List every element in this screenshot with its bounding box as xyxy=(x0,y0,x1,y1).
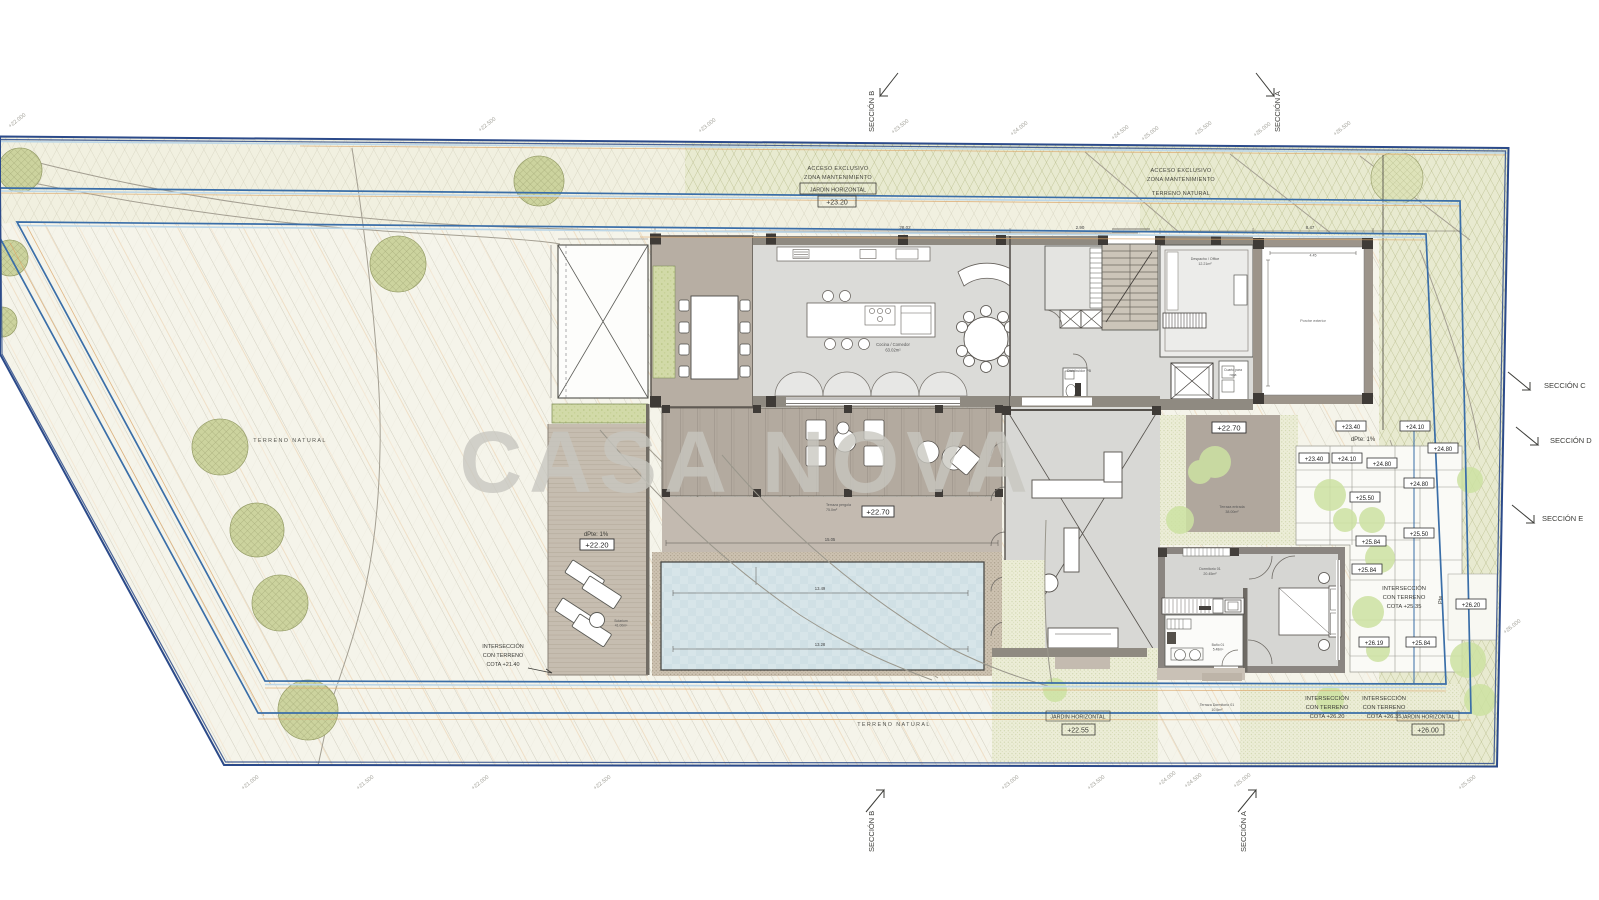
svg-text:INTERSECCIÓN: INTERSECCIÓN xyxy=(1362,695,1406,702)
svg-text:INTERSECCIÓN: INTERSECCIÓN xyxy=(482,643,524,650)
svg-text:TERRENO NATURAL: TERRENO NATURAL xyxy=(253,438,327,444)
svg-text:+22.70: +22.70 xyxy=(1217,424,1240,433)
svg-text:CASA NOVA: CASA NOVA xyxy=(459,414,1034,511)
svg-text:Pte: Pte xyxy=(1438,596,1444,604)
svg-text:TERRENO NATURAL: TERRENO NATURAL xyxy=(857,722,931,728)
svg-text:+26.19: +26.19 xyxy=(1365,641,1384,647)
svg-text:Terraza Dormitorio 01: Terraza Dormitorio 01 xyxy=(1200,703,1235,707)
svg-text:+25.84: +25.84 xyxy=(1412,641,1431,647)
svg-text:+25.50: +25.50 xyxy=(1410,532,1429,538)
svg-text:8.47: 8.47 xyxy=(1306,225,1315,230)
svg-text:Solarium: Solarium xyxy=(614,619,628,623)
svg-text:COTA +26.35: COTA +26.35 xyxy=(1367,714,1402,720)
svg-text:13.28: 13.28 xyxy=(815,642,826,647)
svg-text:Porche exterior: Porche exterior xyxy=(1300,319,1326,323)
svg-text:SECCIÓN B: SECCIÓN B xyxy=(867,811,876,852)
svg-text:SECCIÓN E: SECCIÓN E xyxy=(1542,514,1583,523)
svg-text:Distribuidor PB: Distribuidor PB xyxy=(1067,369,1092,373)
svg-text:dPte: 1%: dPte: 1% xyxy=(1351,437,1376,443)
svg-text:12.21m²: 12.21m² xyxy=(1198,262,1212,266)
svg-text:+25.50: +25.50 xyxy=(1356,496,1375,502)
svg-text:COTA +21.40: COTA +21.40 xyxy=(486,662,519,668)
svg-text:SECCIÓN B: SECCIÓN B xyxy=(867,91,876,132)
svg-text:SECCIÓN D: SECCIÓN D xyxy=(1550,436,1592,445)
svg-text:SECCIÓN C: SECCIÓN C xyxy=(1544,381,1586,390)
svg-text:JARDIN HORIZONTAL: JARDIN HORIZONTAL xyxy=(1050,715,1105,721)
svg-text:CON TERRENO: CON TERRENO xyxy=(1383,595,1426,601)
svg-text:CON TERRENO: CON TERRENO xyxy=(1363,705,1406,711)
svg-text:CON TERRENO: CON TERRENO xyxy=(483,653,524,659)
svg-text:ACCESO EXCLUSIVO: ACCESO EXCLUSIVO xyxy=(807,166,868,172)
svg-text:+22.20: +22.20 xyxy=(585,541,608,550)
svg-text:15.05: 15.05 xyxy=(825,537,836,542)
svg-text:+26.00: +26.00 xyxy=(1417,728,1439,735)
svg-text:41.00m²: 41.00m² xyxy=(615,624,628,628)
svg-text:Terraza entrada: Terraza entrada xyxy=(1219,505,1244,509)
svg-text:+24.10: +24.10 xyxy=(1406,425,1425,431)
svg-text:20.45m²: 20.45m² xyxy=(1203,572,1217,576)
svg-text:CON TERRENO: CON TERRENO xyxy=(1306,705,1349,711)
svg-text:Cuarto para: Cuarto para xyxy=(1224,368,1242,372)
svg-text:JARDIN HORIZONTAL: JARDIN HORIZONTAL xyxy=(810,188,866,194)
svg-text:+26.20: +26.20 xyxy=(1462,603,1481,609)
svg-text:10.5m²: 10.5m² xyxy=(1211,708,1223,712)
svg-text:5.48m²: 5.48m² xyxy=(1213,648,1224,652)
svg-text:+24.80: +24.80 xyxy=(1373,462,1392,468)
svg-text:+25.84: +25.84 xyxy=(1362,540,1381,546)
svg-text:+24.80: +24.80 xyxy=(1434,447,1453,453)
svg-text:Baño 01: Baño 01 xyxy=(1212,643,1225,647)
svg-text:+23.40: +23.40 xyxy=(1342,425,1361,431)
svg-text:+25.84: +25.84 xyxy=(1358,568,1377,574)
svg-text:+23.40: +23.40 xyxy=(1305,457,1324,463)
svg-text:SECCIÓN A: SECCIÓN A xyxy=(1239,811,1248,852)
svg-text:JARDIN HORIZONTAL: JARDIN HORIZONTAL xyxy=(1401,715,1454,721)
svg-text:INTERSECCIÓN: INTERSECCIÓN xyxy=(1305,695,1349,702)
svg-text:ACCESO EXCLUSIVO: ACCESO EXCLUSIVO xyxy=(1150,168,1211,174)
svg-text:Cocina / Comedor: Cocina / Comedor xyxy=(876,342,910,347)
svg-text:Dormitorio 01: Dormitorio 01 xyxy=(1199,567,1221,571)
svg-text:INTERSECCIÓN: INTERSECCIÓN xyxy=(1382,585,1426,592)
svg-text:SECCIÓN A: SECCIÓN A xyxy=(1273,91,1282,132)
svg-text:2.90: 2.90 xyxy=(1076,225,1085,230)
svg-text:dPte: 1%: dPte: 1% xyxy=(584,532,609,538)
svg-text:+24.80: +24.80 xyxy=(1410,482,1429,488)
svg-text:ZONA MANTENIMIENTO: ZONA MANTENIMIENTO xyxy=(804,175,872,181)
svg-text:COTA +26.20: COTA +26.20 xyxy=(1310,714,1345,720)
svg-text:ZONA MANTENIMIENTO: ZONA MANTENIMIENTO xyxy=(1147,177,1215,183)
svg-text:+22.55: +22.55 xyxy=(1067,728,1089,735)
svg-text:+24.10: +24.10 xyxy=(1338,457,1357,463)
svg-text:13.49: 13.49 xyxy=(815,586,826,591)
svg-text:38.00m²: 38.00m² xyxy=(1225,510,1239,514)
svg-text:ropa: ropa xyxy=(1230,373,1237,377)
svg-text:63.02m²: 63.02m² xyxy=(885,348,901,353)
svg-text:4.45: 4.45 xyxy=(1310,254,1317,258)
svg-text:+23.20: +23.20 xyxy=(826,200,848,207)
svg-text:TERRENO NATURAL: TERRENO NATURAL xyxy=(1152,191,1210,197)
svg-text:COTA +25.35: COTA +25.35 xyxy=(1387,604,1422,610)
svg-text:Despacho / Office: Despacho / Office xyxy=(1191,257,1220,261)
